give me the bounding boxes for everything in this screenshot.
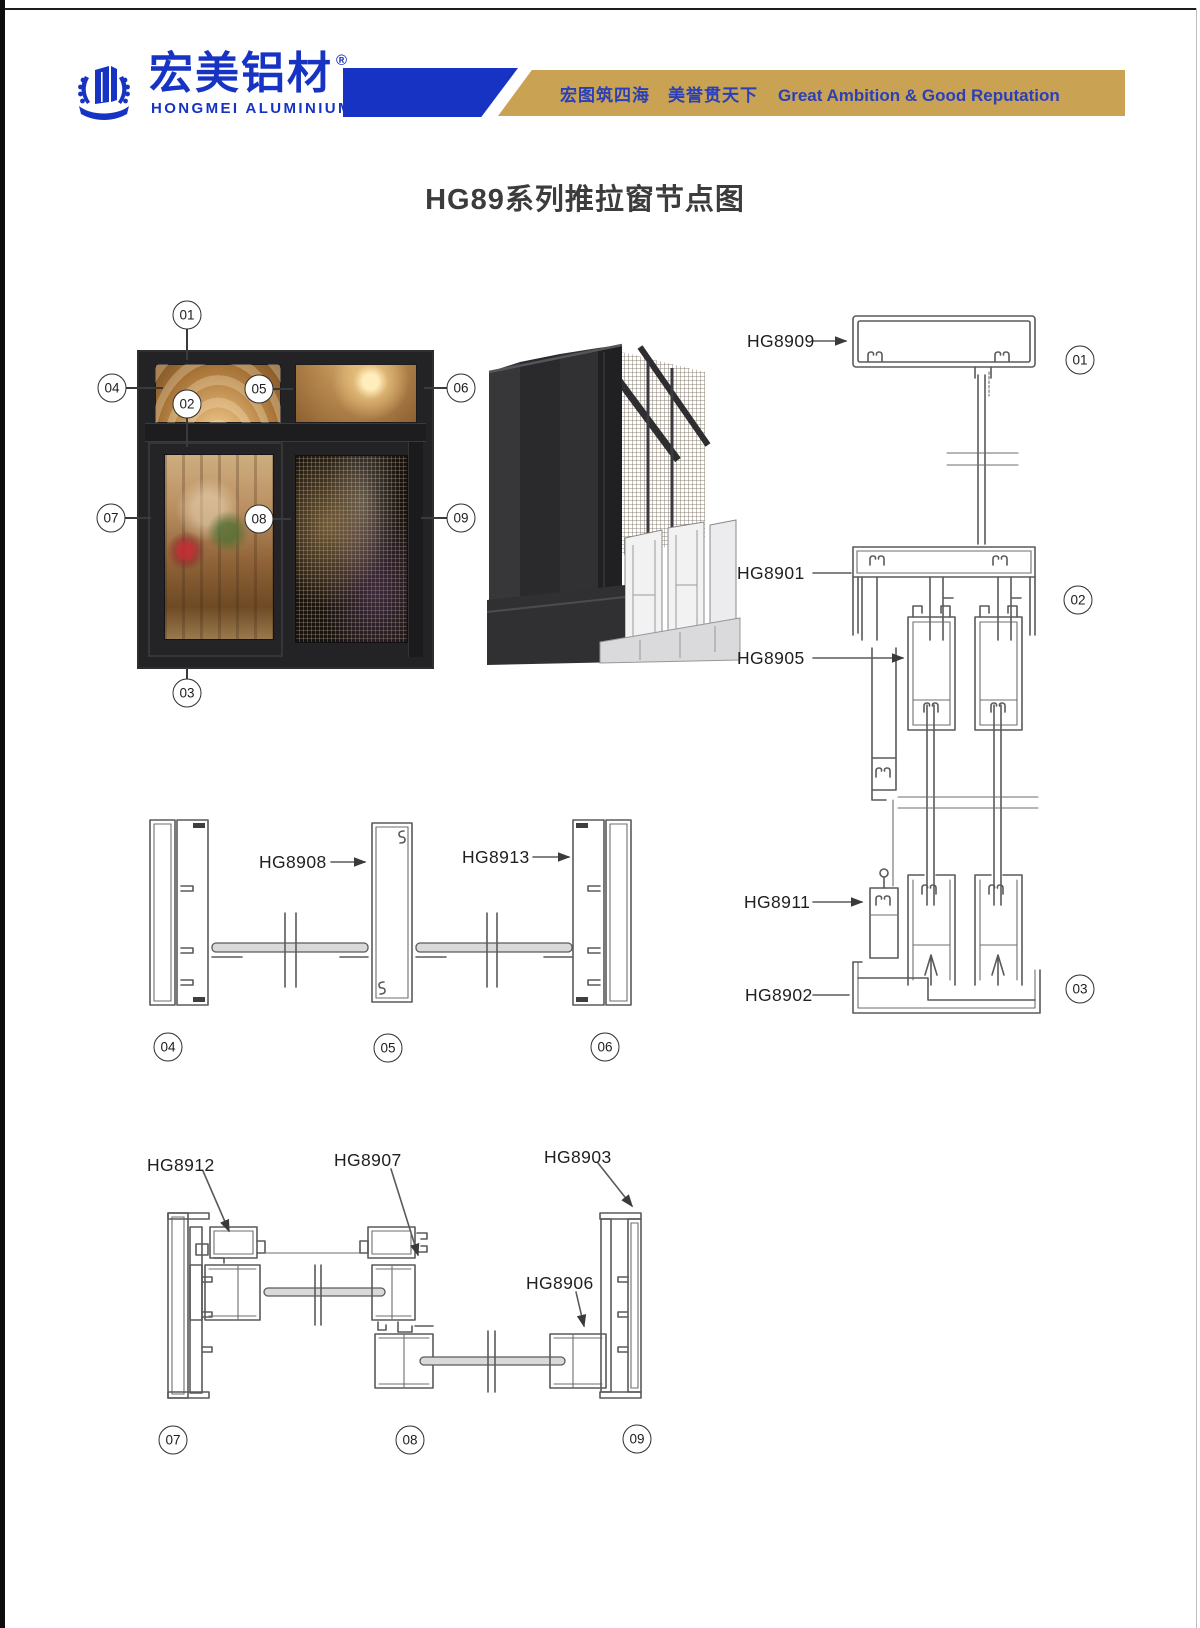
leader-01 xyxy=(186,328,188,360)
page-title: HG89系列推拉窗节点图 xyxy=(0,176,1170,218)
horizontal-section-bottom-drawing xyxy=(140,1140,700,1410)
header-gold-banner: 宏图筑四海 美誉贯天下 Great Ambition & Good Reputa… xyxy=(498,70,1125,116)
leader-05 xyxy=(272,388,293,390)
leader-04 xyxy=(125,387,163,389)
callout-09: 09 xyxy=(447,504,476,533)
leader-02 xyxy=(186,417,188,447)
section-callout-06: 06 xyxy=(591,1033,620,1062)
profile-3d-render xyxy=(480,340,746,666)
window-right-channel xyxy=(408,442,423,657)
scan-edge-top xyxy=(5,8,1197,10)
label-hg8909: HG8909 xyxy=(747,331,815,352)
label-hg8905: HG8905 xyxy=(737,648,805,669)
horizontal-section-top-drawing xyxy=(140,812,645,1012)
brand-name-en: HONGMEI ALUMINIUM xyxy=(151,100,353,117)
scan-edge-left xyxy=(0,0,5,1628)
callout-04: 04 xyxy=(98,374,127,403)
section-callout-09: 09 xyxy=(623,1425,652,1454)
callout-06: 06 xyxy=(447,374,476,403)
transom-glass-right xyxy=(295,364,417,423)
label-hg8901: HG8901 xyxy=(737,563,805,584)
scan-edge-right xyxy=(1196,8,1197,1628)
label-hg8908: HG8908 xyxy=(259,852,327,873)
callout-08: 08 xyxy=(245,505,274,534)
callout-05: 05 xyxy=(245,375,274,404)
section-callout-03: 03 xyxy=(1066,975,1095,1004)
sash-glass-interior-view xyxy=(164,454,274,640)
section-callout-02: 02 xyxy=(1064,586,1093,615)
brand-name-cn: 宏美铝材 xyxy=(149,52,333,96)
label-hg8903: HG8903 xyxy=(544,1147,612,1168)
leader-09 xyxy=(421,517,447,519)
label-hg8913: HG8913 xyxy=(462,847,530,868)
callout-03: 03 xyxy=(173,679,202,708)
section-callout-01: 01 xyxy=(1066,346,1095,375)
leader-08 xyxy=(272,518,291,520)
slogan-chinese: 宏图筑四海 美誉贯天下 xyxy=(560,81,758,106)
section-callout-08: 08 xyxy=(396,1426,425,1455)
insect-screen-panel xyxy=(295,455,408,643)
section-callout-04: 04 xyxy=(154,1033,183,1062)
leader-07 xyxy=(124,517,151,519)
section-callout-07: 07 xyxy=(159,1426,188,1455)
header-blue-band xyxy=(343,68,518,117)
label-hg8902: HG8902 xyxy=(745,985,813,1006)
label-hg8907: HG8907 xyxy=(334,1150,402,1171)
label-hg8906: HG8906 xyxy=(526,1273,594,1294)
leader-06 xyxy=(424,387,447,389)
registered-trademark-icon: ® xyxy=(336,52,347,69)
callout-01: 01 xyxy=(173,301,202,330)
label-hg8912: HG8912 xyxy=(147,1155,215,1176)
slogan-english: Great Ambition & Good Reputation xyxy=(778,86,1060,106)
hongmei-logo-icon xyxy=(71,62,137,122)
label-hg8911: HG8911 xyxy=(744,892,810,913)
callout-07: 07 xyxy=(97,504,126,533)
callout-02: 02 xyxy=(173,390,202,419)
catalog-page: 宏美铝材 ® HONGMEI ALUMINIUM 宏图筑四海 美誉贯天下 Gre… xyxy=(0,0,1200,1628)
section-callout-05: 05 xyxy=(374,1034,403,1063)
